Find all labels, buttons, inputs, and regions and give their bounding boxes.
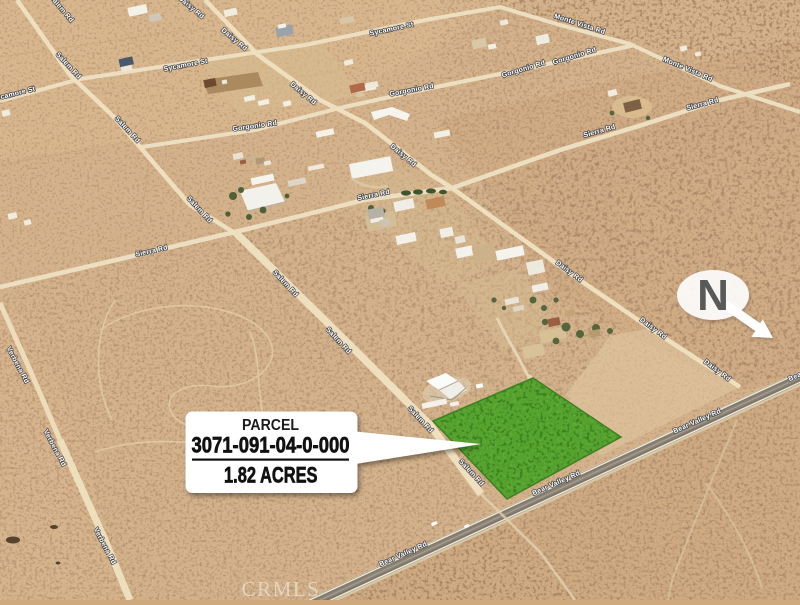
svg-text:CRMLS: CRMLS bbox=[242, 577, 321, 600]
svg-text:1.82 ACRES: 1.82 ACRES bbox=[224, 463, 318, 488]
svg-text:3071-091-04-0-000: 3071-091-04-0-000 bbox=[192, 433, 350, 458]
svg-text:N: N bbox=[697, 271, 729, 320]
svg-text:PARCEL: PARCEL bbox=[242, 417, 299, 434]
